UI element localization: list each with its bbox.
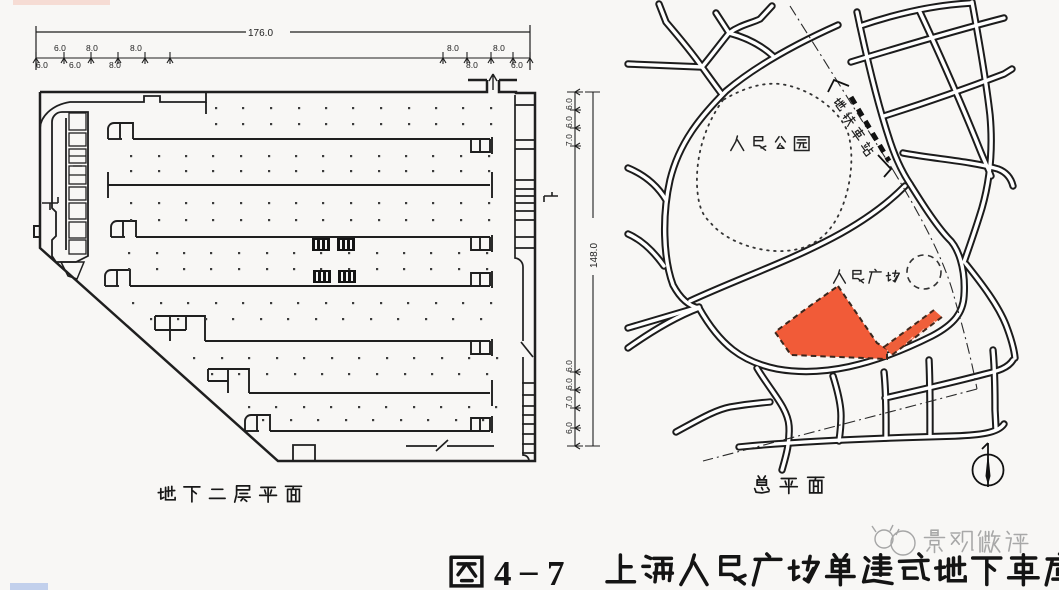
svg-text:8.0: 8.0 — [130, 43, 142, 53]
svg-text:8.0: 8.0 — [109, 60, 121, 70]
svg-text:6.0: 6.0 — [511, 60, 523, 70]
svg-text:176.0: 176.0 — [248, 28, 273, 39]
svg-text:148.0: 148.0 — [589, 243, 600, 268]
svg-text:8.0: 8.0 — [493, 43, 505, 53]
svg-text:6.0: 6.0 — [54, 43, 66, 53]
svg-text:6.0: 6.0 — [564, 378, 574, 390]
svg-text:8.0: 8.0 — [447, 43, 459, 53]
svg-text:8.0: 8.0 — [86, 43, 98, 53]
svg-text:6.0: 6.0 — [564, 116, 574, 128]
svg-text:6.0: 6.0 — [564, 360, 574, 372]
svg-text:–: – — [519, 551, 538, 590]
svg-text:6.0: 6.0 — [564, 422, 574, 434]
svg-text:7.0: 7.0 — [564, 134, 574, 146]
svg-text:4: 4 — [494, 554, 512, 590]
svg-text:8.0: 8.0 — [466, 60, 478, 70]
svg-text:7: 7 — [547, 554, 565, 590]
svg-text:6.0: 6.0 — [564, 98, 574, 110]
svg-text:6.0: 6.0 — [69, 60, 81, 70]
svg-text:6.0: 6.0 — [36, 60, 48, 70]
svg-text:7.0: 7.0 — [564, 396, 574, 408]
